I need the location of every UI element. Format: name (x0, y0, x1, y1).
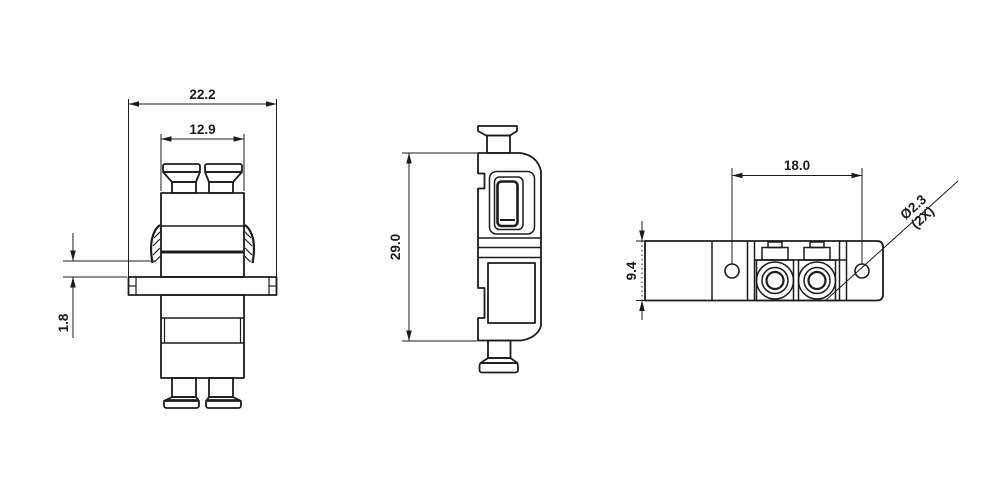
top-view: 18.0 9.4 Ø2.3 (2X) (624, 158, 958, 320)
dim-label-1-8: 1.8 (56, 313, 71, 332)
front-bottom-latch-right (206, 378, 241, 408)
dim-label-29-0: 29.0 (388, 234, 403, 260)
dim-label-9-4: 9.4 (624, 261, 639, 280)
dimension-latch-gap: 1.8 (56, 233, 156, 338)
dim-label-12-9: 12.9 (189, 122, 215, 137)
dim-label-18-0: 18.0 (784, 158, 810, 173)
side-view: 29.0 (388, 126, 541, 373)
side-mid-lines (478, 238, 541, 258)
front-bottom-latch-left (164, 378, 199, 408)
front-flange (129, 277, 277, 295)
front-top-latch-left (163, 164, 200, 193)
front-view: 22.2 12.9 1.8 (56, 87, 277, 408)
front-panel-hook-right (244, 225, 254, 263)
dim-label-22-2: 22.2 (189, 87, 215, 102)
front-panel-hook-left (151, 225, 161, 263)
technical-drawing-canvas: 22.2 12.9 1.8 (0, 0, 1000, 500)
front-body-lower (161, 295, 244, 378)
side-lower-opening (488, 263, 535, 323)
dimension-body-width: 12.9 (161, 122, 244, 191)
top-body (645, 241, 883, 301)
mounting-hole-left (725, 264, 739, 278)
front-body-upper (161, 193, 244, 277)
technical-drawing-page: 22.2 12.9 1.8 (0, 0, 1000, 500)
front-top-latch-right (205, 164, 242, 193)
dimension-body-depth: 9.4 (624, 221, 645, 320)
side-top-knob (478, 126, 517, 153)
mounting-hole-right (855, 264, 869, 278)
dimension-hole-spacing: 18.0 (732, 158, 862, 264)
side-port-profile (490, 172, 535, 235)
top-port-left (757, 242, 794, 301)
dimension-height: 29.0 (388, 153, 477, 341)
side-bottom-knob (480, 341, 519, 373)
top-port-right (799, 242, 836, 301)
